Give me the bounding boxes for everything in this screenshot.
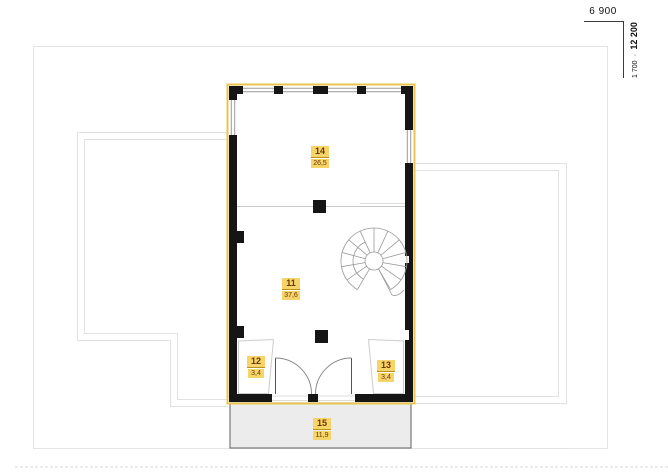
- dimension-height-label: 1 700 ∙ 12 200: [624, 20, 642, 78]
- dimension-lines: [584, 21, 624, 78]
- room-label-11: 11 37,6: [282, 278, 300, 300]
- room-label-13: 13 3,4: [377, 360, 395, 382]
- room-number: 12: [247, 356, 265, 368]
- roof-outline-left: [78, 133, 229, 407]
- room-label-15: 15 11,9: [313, 418, 331, 440]
- room-number: 14: [311, 146, 329, 158]
- room-number: 11: [282, 278, 300, 290]
- dimension-width-label: 6 900: [578, 6, 628, 17]
- room-area: 26,5: [311, 159, 329, 168]
- room-area: 11,9: [313, 431, 330, 440]
- spiral-staircase: [341, 228, 407, 295]
- room-label-12: 12 3,4: [247, 356, 265, 378]
- room-area: 3,4: [378, 373, 394, 382]
- floor-plan-canvas: 6 900 1 700 ∙ 12 200 14 26,5 11 37,6 12 …: [0, 0, 668, 473]
- dimension-separator: ∙: [632, 54, 639, 56]
- room-number: 15: [313, 418, 331, 430]
- room-area: 3,4: [248, 369, 264, 378]
- roof-outline-right: [411, 164, 570, 449]
- dimension-height-total: 12 200: [629, 22, 639, 50]
- room-label-14: 14 26,5: [311, 146, 329, 168]
- columns: [313, 200, 328, 343]
- dimension-height-part: 1 700: [632, 60, 639, 78]
- room-area: 37,6: [282, 291, 300, 300]
- room-number: 13: [377, 360, 395, 372]
- floor-plan-drawing: [0, 0, 668, 473]
